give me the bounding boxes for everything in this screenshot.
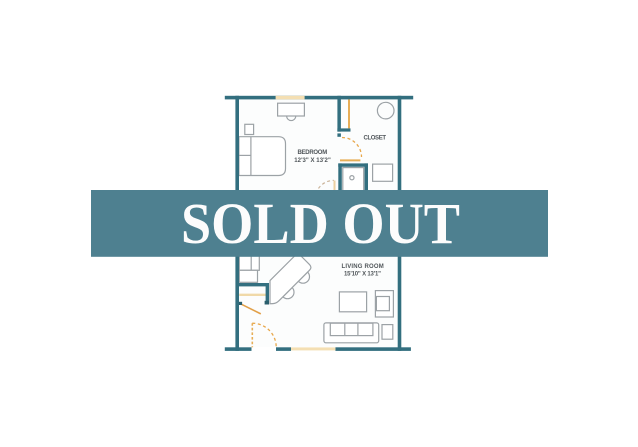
svg-text:BEDROOM: BEDROOM — [298, 150, 328, 156]
svg-text:CLOSET: CLOSET — [364, 135, 387, 141]
svg-text:SOLD OUT: SOLD OUT — [181, 191, 460, 256]
svg-text:12'3" X 13'2": 12'3" X 13'2" — [294, 158, 331, 164]
svg-text:15'10" X 13'1": 15'10" X 13'1" — [344, 271, 381, 277]
svg-text:LIVING ROOM: LIVING ROOM — [342, 264, 384, 270]
